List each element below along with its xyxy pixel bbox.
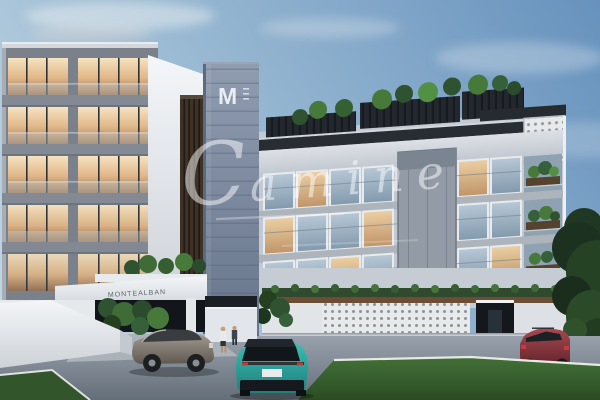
balcony xyxy=(524,198,562,237)
canopy-column xyxy=(186,298,196,334)
floor xyxy=(2,107,158,156)
ground-floor xyxy=(255,268,566,342)
left-building-floors xyxy=(2,58,158,291)
headlight xyxy=(209,343,213,348)
render-canvas: M MONTEALBAN xyxy=(0,0,600,400)
architectural-rendering: M MONTEALBAN xyxy=(0,0,600,400)
wood-band xyxy=(262,297,566,303)
floor xyxy=(2,156,158,205)
entrance-recess xyxy=(476,300,514,336)
light-bar xyxy=(242,362,304,365)
balcony xyxy=(524,154,562,193)
rear-window xyxy=(242,347,300,361)
teal-roof xyxy=(244,339,296,347)
license-plate xyxy=(262,369,282,377)
roof-rails xyxy=(532,328,554,329)
lattice-wall xyxy=(322,303,470,334)
rear-bumper xyxy=(240,380,304,391)
lawn-right xyxy=(298,357,600,400)
side-wall-right-of-canopy xyxy=(205,296,257,342)
floor xyxy=(2,205,158,254)
tower-logo-letter: M xyxy=(218,83,237,109)
floor xyxy=(2,58,158,107)
